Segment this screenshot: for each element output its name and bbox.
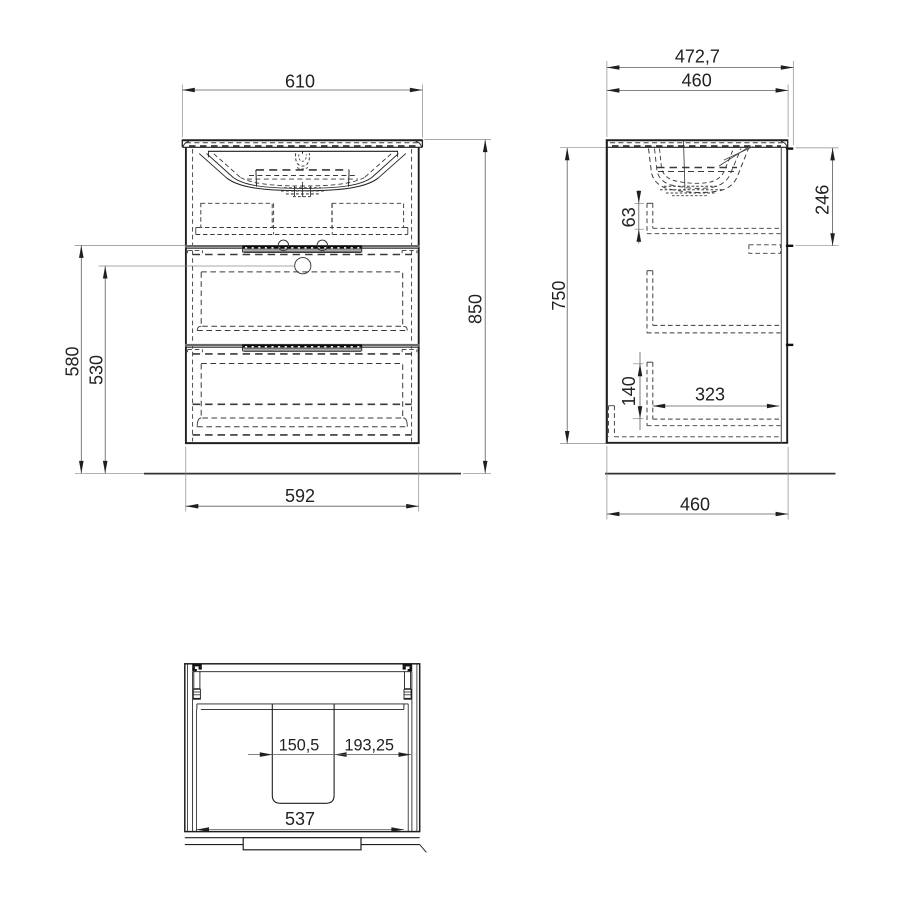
svg-text:580: 580 <box>63 346 83 376</box>
svg-text:850: 850 <box>465 294 485 324</box>
svg-text:592: 592 <box>285 486 315 506</box>
svg-text:472,7: 472,7 <box>675 47 720 67</box>
svg-text:537: 537 <box>285 809 315 829</box>
svg-text:140: 140 <box>619 376 639 406</box>
svg-text:246: 246 <box>812 185 832 215</box>
svg-text:530: 530 <box>87 355 107 385</box>
svg-text:323: 323 <box>695 384 725 404</box>
svg-text:750: 750 <box>549 281 569 311</box>
svg-text:193,25: 193,25 <box>345 736 395 754</box>
svg-text:460: 460 <box>680 494 710 514</box>
svg-text:63: 63 <box>619 207 639 227</box>
svg-text:150,5: 150,5 <box>279 736 320 754</box>
svg-text:610: 610 <box>285 71 315 91</box>
svg-text:460: 460 <box>682 71 712 91</box>
